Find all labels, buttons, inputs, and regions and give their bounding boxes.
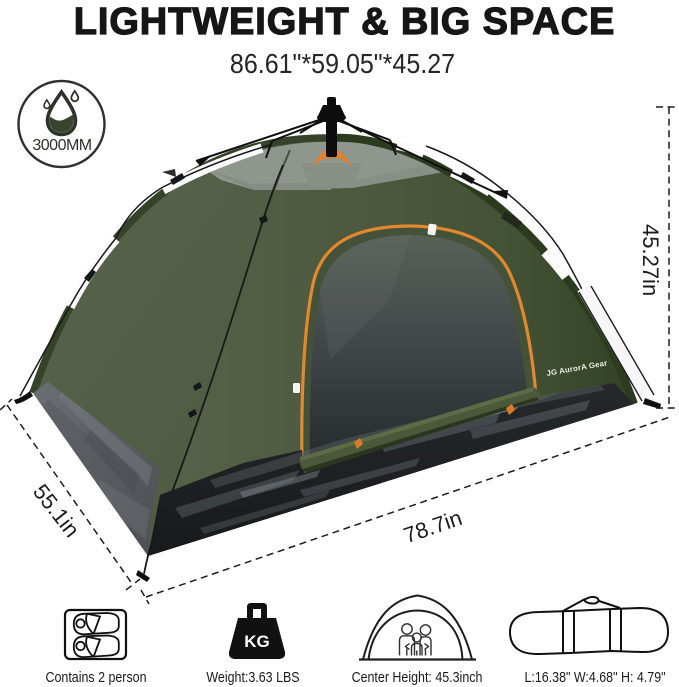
svg-text:KG: KG bbox=[244, 632, 270, 651]
